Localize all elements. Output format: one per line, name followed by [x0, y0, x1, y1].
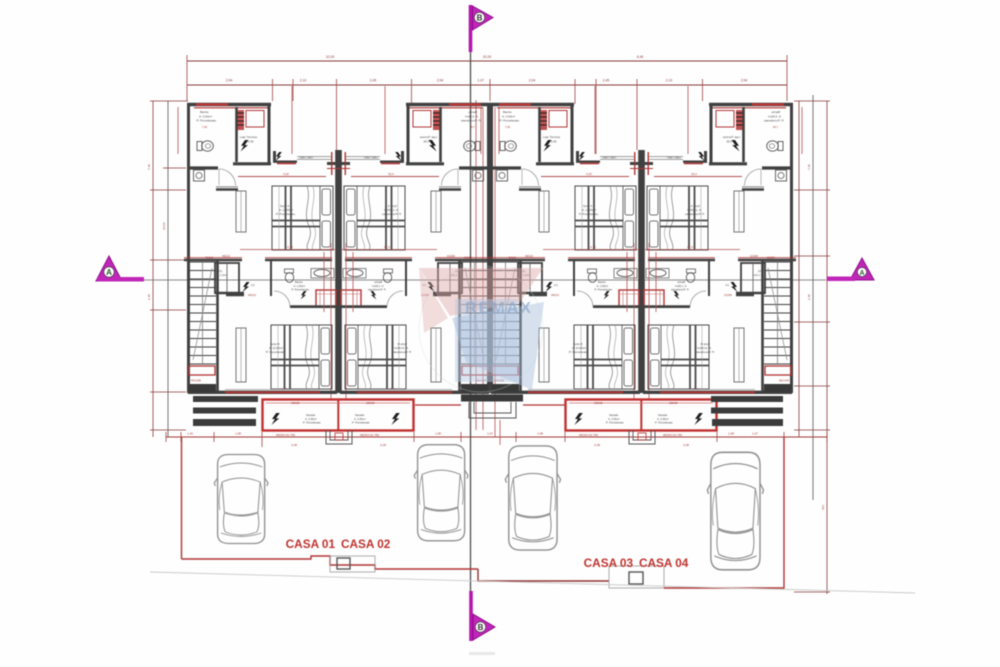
svg-text:2,08: 2,08 — [594, 443, 600, 447]
svg-text:2,45: 2,45 — [603, 79, 610, 83]
svg-text:2,08: 2,08 — [291, 443, 297, 447]
svg-text:2,08: 2,08 — [683, 443, 689, 447]
svg-text:A: A — [859, 270, 864, 277]
svg-text:7,40: 7,40 — [147, 164, 151, 170]
svg-text:CASA 03 CASA 04: CASA 03 CASA 04 — [584, 556, 689, 570]
svg-text:1,98: 1,98 — [435, 432, 441, 436]
svg-text:B: B — [477, 14, 483, 23]
svg-text:10,04: 10,04 — [162, 222, 166, 230]
svg-text:2,08: 2,08 — [380, 443, 386, 447]
svg-text:1,98: 1,98 — [728, 432, 734, 436]
svg-text:2,94: 2,94 — [437, 79, 444, 83]
svg-text:1,07: 1,07 — [487, 432, 493, 436]
svg-text:1,98: 1,98 — [235, 432, 241, 436]
svg-text:2,40: 2,40 — [807, 294, 811, 300]
svg-text:2,94: 2,94 — [741, 79, 748, 83]
svg-text:B: B — [478, 623, 484, 632]
svg-text:302: 302 — [821, 505, 825, 510]
svg-text:1,98: 1,98 — [537, 432, 543, 436]
svg-text:CASA 01 CASA 02: CASA 01 CASA 02 — [286, 537, 391, 551]
svg-text:2,94: 2,94 — [226, 79, 233, 83]
svg-text:1,07: 1,07 — [752, 432, 758, 436]
svg-text:10,00: 10,00 — [326, 55, 335, 59]
svg-text:2,45: 2,45 — [370, 79, 377, 83]
svg-text:1,07: 1,07 — [477, 79, 484, 83]
svg-text:7,40: 7,40 — [807, 164, 811, 170]
svg-text:20,00: 20,00 — [483, 55, 492, 59]
svg-text:2,94: 2,94 — [529, 79, 536, 83]
svg-text:REMAX: REMAX — [465, 300, 533, 317]
svg-text:2,40: 2,40 — [147, 294, 151, 300]
svg-text:2,10: 2,10 — [666, 79, 673, 83]
svg-text:2,10: 2,10 — [300, 79, 307, 83]
svg-text:1,40: 1,40 — [187, 432, 193, 436]
svg-text:A: A — [106, 268, 112, 277]
svg-text:6,46: 6,46 — [637, 55, 644, 59]
